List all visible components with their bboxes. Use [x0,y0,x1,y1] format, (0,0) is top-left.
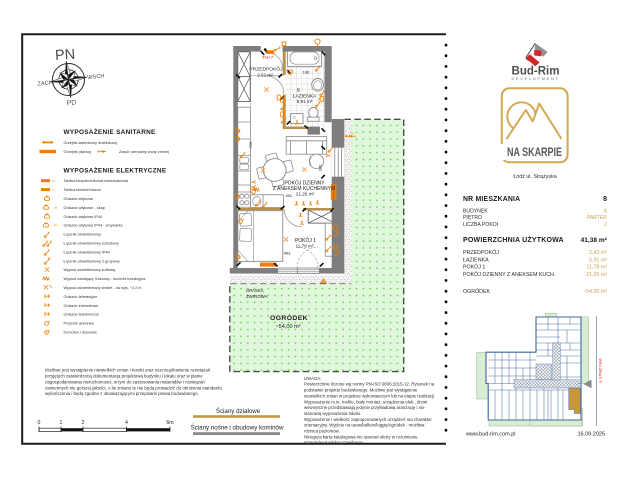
svg-text:Tablica bezpiecznikowa mieszka: Tablica bezpiecznikowa mieszkaniowa [64,179,129,183]
svg-text:UWAGA:: UWAGA: [304,376,321,381]
svg-text:~54,00 m²: ~54,00 m² [583,289,607,295]
svg-text:Gniazdo wtykowe IP44: Gniazdo wtykowe IP44 [64,215,103,219]
svg-text:Gniazdo wtykowe - okap: Gniazdo wtykowe - okap [64,206,105,210]
svg-text:POWIERZCHNIA UŻYTKOWA: POWIERZCHNIA UŻYTKOWA [463,236,564,244]
svg-text:1: 1 [60,420,63,426]
svg-text:2: 2 [82,420,85,426]
svg-text:Wypust oświetleniowy kinkiet -: Wypust oświetleniowy kinkiet - na wys. ~… [64,286,142,290]
svg-text:Grzejnik płytowy: Grzejnik płytowy [64,150,92,154]
svg-text:2: 2 [604,222,607,228]
svg-text:Tt: Tt [52,188,55,192]
svg-text:ŁAZIENKA: ŁAZIENKA [463,257,489,263]
svg-text:41,38 m²: 41,38 m² [581,237,608,244]
svg-text:POKÓJ 1: POKÓJ 1 [463,264,485,271]
svg-text:LICZBA POKOI: LICZBA POKOI [463,222,498,228]
svg-text:zm: zm [54,223,59,227]
svg-text:Wypust oświetleniowy sufitowy: Wypust oświetleniowy sufitowy [64,268,116,272]
svg-text:A: A [604,208,608,214]
svg-text:zagospodarowania nieruchomości: zagospodarowania nieruchomości, w tym do… [45,379,205,384]
svg-text:Gniazdo telewizyjne: Gniazdo telewizyjne [64,295,98,299]
svg-text:2,43 m²: 2,43 m² [589,250,607,256]
svg-text:TH+7: TH+7 [262,55,274,60]
svg-text:726: 726 [248,141,253,148]
svg-text:różnica poziomów.: różnica poziomów. [304,429,340,434]
svg-text:Wyposażenie m.in. meble, biały: Wyposażenie m.in. meble, biały montaż, u… [304,399,427,404]
svg-text:WYPOSAŻENIE SANITARNE: WYPOSAŻENIE SANITARNE [64,127,157,136]
svg-text:380: 380 [317,164,322,171]
svg-text:Domofon i dzwonek: Domofon i dzwonek [64,331,97,335]
svg-text:przyjętych zatwierdzoną dokume: przyjętych zatwierdzoną dokumentacją pro… [45,374,203,379]
svg-text:~54,00 m²: ~54,00 m² [275,324,300,330]
svg-text:POKÓJ DZIENNY Z ANEKSEM KUCH.: POKÓJ DZIENNY Z ANEKSEM KUCH. [463,271,555,278]
svg-text:wykończenia i będą zgodne z ob: wykończenia i będą zgodne z obowiązujący… [45,391,199,396]
svg-text:www.bud-rim.com.pl: www.bud-rim.com.pl [465,432,516,438]
svg-text:przepisów Kodeksu Cywilnego.: przepisów Kodeksu Cywilnego. [304,440,364,445]
svg-text:stanowią wyposażenia lokalu.: stanowią wyposażenia lokalu. [304,411,361,416]
svg-text:30: 30 [296,87,301,92]
svg-text:PARTER: PARTER [587,215,608,221]
svg-text:PN: PN [55,47,76,64]
svg-text:ul. STRĄŻYSKA: ul. STRĄŻYSKA [598,358,603,383]
svg-text:ok: ok [54,205,58,209]
svg-text:BUDYNEK: BUDYNEK [463,208,488,214]
svg-text:ŻWIROWA: ŻWIROWA [246,294,268,299]
svg-text:Tablica teletechniczna: Tablica teletechniczna [64,188,102,192]
svg-text:Możliwe jest wystąpienie niewi: Możliwe jest wystąpienie niewielkich zmi… [45,368,211,373]
svg-text:6m: 6m [166,420,173,426]
svg-text:Gniazdo wtykowe: Gniazdo wtykowe [64,197,94,201]
svg-text:Łącznik oświetleniowy schodowy: Łącznik oświetleniowy schodowy [64,242,119,246]
svg-text:Grzejnik łazienkowy drabinkowy: Grzejnik łazienkowy drabinkowy [64,141,118,145]
svg-text:Łącznik oświetleniowy 2-grupow: Łącznik oświetleniowy 2-grupowy [64,259,120,263]
svg-text:PRZEDPOKÓJ: PRZEDPOKÓJ [463,249,499,256]
svg-text:OGRÓDEK: OGRÓDEK [270,313,308,322]
svg-text:orientacyjny. Wyjście na taras: orientacyjny. Wyjście na taras/balkon/lo… [304,423,425,428]
svg-text:Gniazdo telefoniczne: Gniazdo telefoniczne [64,313,99,317]
svg-text:NA SKARPIE: NA SKARPIE [507,145,562,159]
svg-text:Ściany działowe: Ściany działowe [216,407,261,415]
svg-text:451: 451 [285,193,292,198]
svg-text:DEVELOPMENT: DEVELOPMENT [511,76,559,81]
svg-text:21,26 m²: 21,26 m² [586,272,607,278]
svg-text:PRZEDPOKÓJ: PRZEDPOKÓJ [249,65,283,72]
svg-text:11,78 m²: 11,78 m² [586,265,607,271]
svg-text:5,91 m²: 5,91 m² [589,257,607,263]
svg-text:5,91 m²: 5,91 m² [297,99,313,104]
svg-text:453: 453 [284,251,291,256]
svg-text:0: 0 [38,420,41,426]
svg-text:wewnętrzne przedstawiają jedyn: wewnętrzne przedstawiają jedynie przykła… [304,405,425,410]
svg-text:Przycisk dzwonka: Przycisk dzwonka [64,322,95,326]
svg-text:4: 4 [125,420,128,426]
svg-text:Łącznik oświetleniowy IP44: Łącznik oświetleniowy IP44 [64,250,110,254]
svg-text:Wypust zasilający 3-fazowy - k: Wypust zasilający 3-fazowy - kuchnia ind… [64,277,147,281]
svg-text:Gniazdo internetowe: Gniazdo internetowe [64,304,99,308]
svg-text:21,26 m²: 21,26 m² [296,192,315,197]
svg-text:Gniazdo wtykowe IP44 - zmywark: Gniazdo wtykowe IP44 - zmywarka [64,224,124,228]
svg-text:Łącznik oświetleniowy: Łącznik oświetleniowy [64,233,101,237]
svg-text:Łódź ul. Strążyska: Łódź ul. Strążyska [513,174,556,180]
svg-text:Zawór czerpalny wody zimnej: Zawór czerpalny wody zimnej [119,150,169,154]
svg-text:niewielkich zmian w projekcie: niewielkich zmian w projekcie wykonawczy… [304,393,435,398]
svg-text:PD: PD [67,99,77,107]
svg-text:166: 166 [303,70,310,75]
svg-text:podstawie projektu budowlanego: podstawie projektu budowlanego. Możliwe … [304,388,418,393]
svg-text:11,78 m²: 11,78 m² [296,244,314,249]
svg-text:Wyposażenie i wielkość zapropo: Wyposażenie i wielkość zaproponowanych u… [304,417,432,422]
svg-text:2,52 m²: 2,52 m² [257,72,273,77]
svg-text:16.09.2025: 16.09.2025 [577,432,605,438]
svg-text:Ściany nośne i obudowy kominów: Ściany nośne i obudowy kominów [191,424,284,432]
svg-text:zamiennych nie gorszej jakości: zamiennych nie gorszej jakości, o ile zm… [45,385,223,390]
svg-text:Powierzchnie liczone wg normy: Powierzchnie liczone wg normy PN-ISO 983… [304,382,435,387]
svg-text:Niniejsza karta katalogowa nie: Niniejsza karta katalogowa nie stanowi o… [304,434,418,439]
svg-text:8: 8 [603,196,607,203]
svg-text:PIĘTRO: PIĘTRO [463,215,482,221]
svg-text:WYPOSAŻENIE ELEKTRYCZNE: WYPOSAŻENIE ELEKTRYCZNE [64,165,167,174]
svg-text:OGRÓDEK: OGRÓDEK [463,288,491,295]
svg-text:OPASKA: OPASKA [246,288,264,293]
svg-text:NR MIESZKANIA: NR MIESZKANIA [463,196,520,203]
